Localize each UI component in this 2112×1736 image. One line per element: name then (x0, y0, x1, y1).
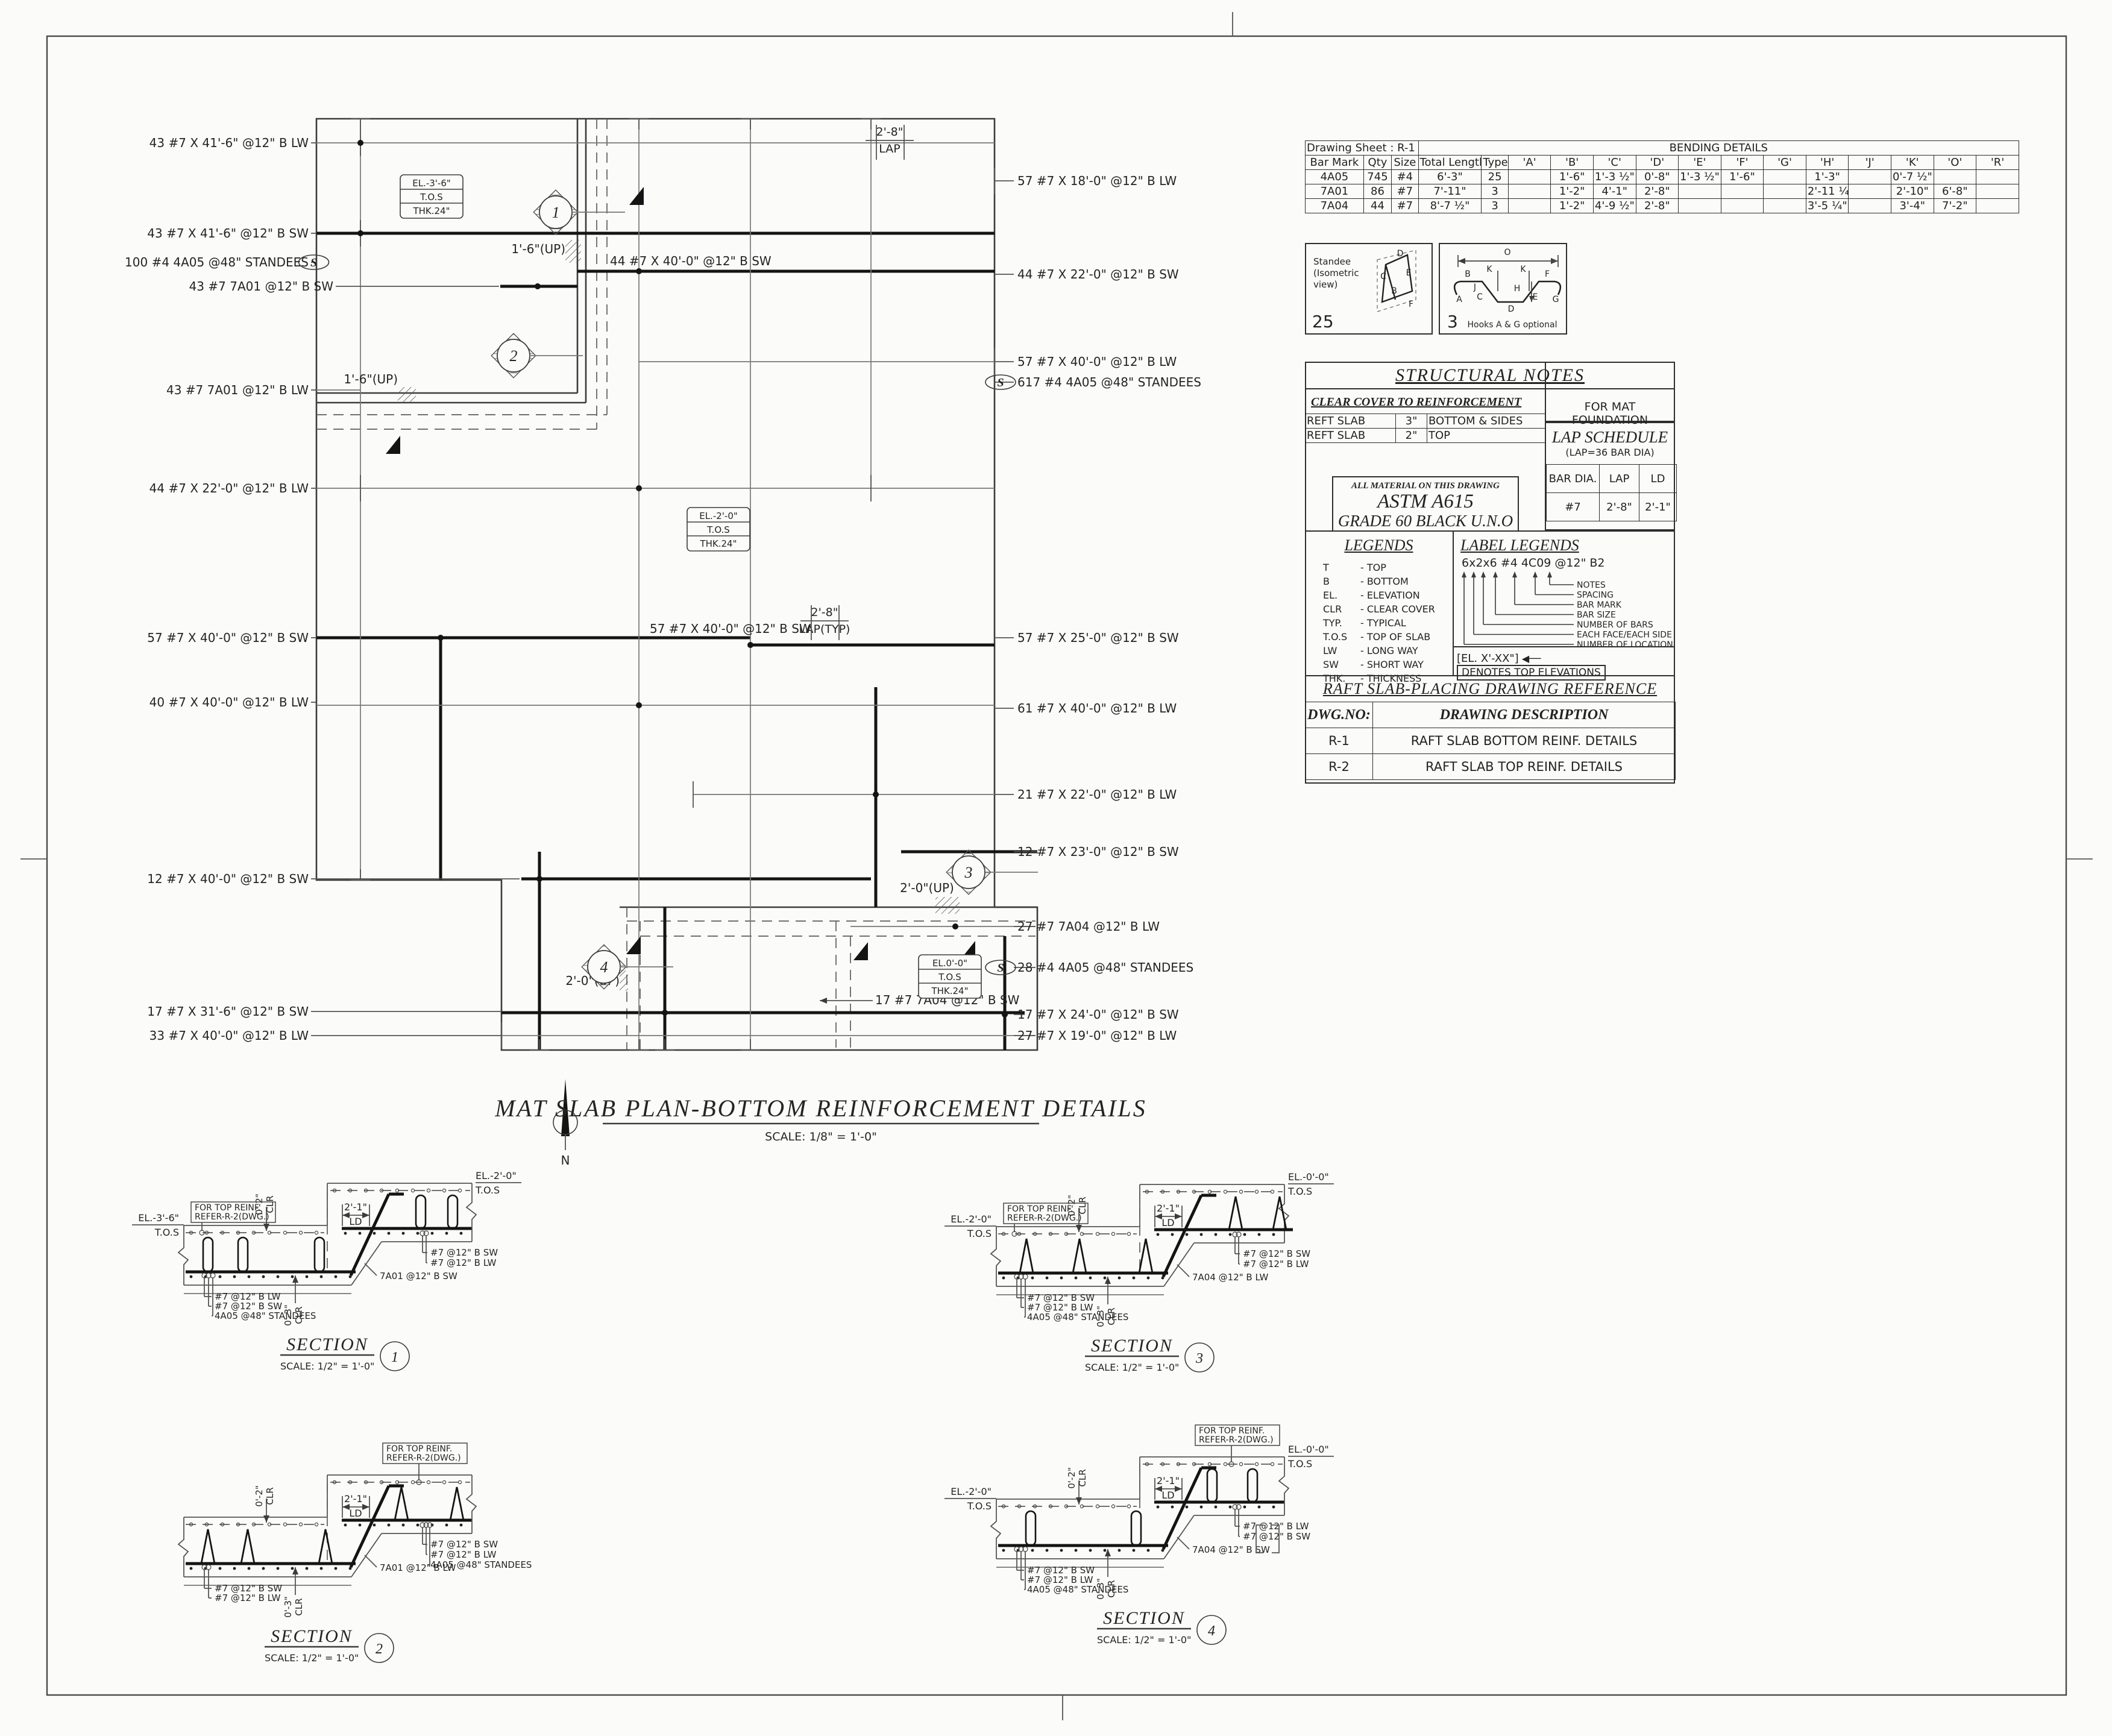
drawing-text: K (1486, 265, 1492, 274)
table-cell: REFT SLAB (1306, 414, 1396, 429)
table-cell (1764, 184, 1806, 199)
section-detail-1: 2'-1"LD0'-2"CLR0'-3"CLRFOR TOP REINF.REF… (132, 1170, 521, 1372)
drawing-text: SCALE: 1/2" = 1'-0" (265, 1652, 359, 1664)
drawing-text: E (1533, 292, 1538, 302)
table-header-cell: Size (1392, 156, 1418, 170)
drawing-text: EL.-2'-0" (476, 1170, 517, 1181)
table-cell (1508, 199, 1551, 213)
table-cell (1976, 199, 2019, 213)
elevation-sample: [EL. X'-XX"] (1457, 652, 1519, 665)
legend-item: LW- LONG WAY (1323, 644, 1435, 658)
drawing-text: 12 #7 X 40'-0" @12" B SW (147, 872, 309, 886)
bar-dot (535, 283, 541, 289)
drawing-text: LD (349, 1508, 362, 1519)
drawing-line (365, 1263, 377, 1275)
drawing-text: 57 #7 X 40'-0" @12" B LW (1017, 354, 1177, 369)
drawing-text: LD (1161, 1217, 1174, 1228)
drawing-text: FOR TOP REINF. (386, 1444, 452, 1454)
table-cell (1679, 184, 1721, 199)
table-cell: 1'-3 ½" (1679, 170, 1721, 184)
drawing-text: 25 (1312, 312, 1334, 332)
bar-dot (636, 485, 642, 491)
drawing-text: MAT SLAB PLAN-BOTTOM REINFORCEMENT DETAI… (494, 1095, 1147, 1122)
table-header-cell: 'O' (1934, 156, 1976, 170)
drawing-text: 2'-0"(UP) (900, 881, 954, 895)
drawing-text: (Isometric (1313, 268, 1359, 278)
drawing-text: D (1397, 249, 1404, 259)
drawing-text: 1'-6"(UP) (511, 242, 565, 256)
drawing-text: 4A05 @48" STANDEES (1027, 1584, 1128, 1595)
table-cell: #7 (1547, 493, 1600, 521)
lap-schedule-title: LAP SCHEDULE (1546, 428, 1674, 447)
table-header-cell: 'D' (1636, 156, 1679, 170)
drawing-text: T.O.S (475, 1184, 500, 1196)
legend-item: B- BOTTOM (1323, 574, 1435, 588)
section-detail-2: 2'-1"LD0'-2"CLR0'-3"CLRFOR TOP REINF.REF… (178, 1443, 532, 1664)
drawing-text: SECTION (1091, 1336, 1173, 1356)
table-cell: 1'-6" (1721, 170, 1764, 184)
drawing-text: 3 (964, 864, 973, 881)
drawing-text: 1 (391, 1350, 398, 1365)
table-cell: 1'-3 ½" (1593, 170, 1636, 184)
drawing-text: BAR MARK (1577, 600, 1622, 610)
drawing-text: F (1409, 300, 1413, 309)
table-header-cell: 'C' (1593, 156, 1636, 170)
structural-drawing-sheet: 43 #7 X 41'-6" @12" B LW43 #7 X 41'-6" @… (0, 0, 2112, 1736)
legends-title: LEGENDS (1305, 536, 1453, 555)
drawing-text: #7 @12" B SW (1243, 1248, 1310, 1259)
table-cell: 7'-11" (1418, 184, 1482, 199)
table-cell: 2'-8" (1636, 199, 1679, 213)
drawing-text: 1'-6"(UP) (344, 372, 398, 386)
drawing-text: A (1456, 295, 1462, 304)
legend-item: T- TOP (1323, 561, 1435, 574)
material-note-box: ALL MATERIAL ON THIS DRAWING ASTM A615 G… (1332, 476, 1519, 532)
table-cell (1508, 184, 1551, 199)
table-cell (1721, 184, 1764, 199)
bar-dot (438, 635, 444, 641)
drawing-text: #7 @12" B LW (215, 1593, 281, 1603)
drawing-text: J (1473, 283, 1476, 292)
drawing-text: THK.24" (699, 538, 737, 549)
drawing-text: 0'-2" (1066, 1467, 1077, 1489)
table-cell (1849, 199, 1891, 213)
drawing-text: REFER-R-2(DWG.) (1199, 1435, 1274, 1445)
drawing-text: 40 #7 X 40'-0" @12" B LW (149, 695, 309, 709)
drawing-text: 3 (1195, 1351, 1203, 1366)
drawing-text: 3 (1447, 312, 1458, 332)
drawing-text: 2'-1" (1157, 1203, 1180, 1214)
reference-title: RAFT SLAB-PLACING DRAWING REFERENCE (1305, 680, 1675, 698)
drawing-text: C (1380, 272, 1386, 281)
lap-schedule-subtitle: (LAP=36 BAR DIA) (1546, 447, 1674, 458)
drawing-text: B (1391, 286, 1397, 296)
table-header-cell: DWG.NO: (1306, 702, 1373, 728)
drawing-text: EL.-2'-0" (699, 511, 738, 521)
drawing-text: EL.0'-0" (932, 958, 967, 969)
drawing-text: 2'-1" (344, 1201, 367, 1213)
drawing-text: 7A01 @12" B LW (380, 1562, 456, 1573)
section-cut-flag (629, 187, 644, 205)
table-cell: 2" (1396, 429, 1427, 443)
bar-dot (357, 140, 363, 146)
table-cell (1764, 199, 1806, 213)
drawing-text: G (1553, 295, 1559, 304)
drawing-text: CLR (1077, 1469, 1088, 1486)
drawing-text: REFER-R-2(DWG.) (1007, 1213, 1082, 1223)
drawing-text: F (1545, 269, 1550, 279)
drawing-text: 44 #7 X 22'-0" @12" B LW (149, 481, 309, 495)
drawing-text: 44 #7 X 22'-0" @12" B SW (1017, 267, 1179, 281)
material-line-3: GRADE 60 BLACK U.N.O (1333, 512, 1518, 530)
drawing-text: SCALE: 1/2" = 1'-0" (1097, 1634, 1191, 1646)
drawing-text: LD (1161, 1489, 1174, 1501)
drawing-text: T.O.S (1287, 1186, 1312, 1197)
table-cell: 6'-8" (1934, 184, 1976, 199)
bend-type-25-box: Standee(Isometricview)25DCEBF (1305, 243, 1433, 335)
table-cell: 0'-8" (1636, 170, 1679, 184)
drawing-text: BAR SIZE (1577, 611, 1616, 620)
drawing-text: T.O.S (420, 192, 443, 203)
drawing-line (1177, 1265, 1189, 1277)
drawing-text: S (310, 256, 317, 269)
drawing-line (1177, 1537, 1189, 1549)
drawing-text: 43 #7 X 41'-6" @12" B LW (149, 136, 309, 150)
drawing-text: CLR (265, 1195, 275, 1213)
drawing-text: S (997, 376, 1004, 389)
table-cell: 2'-8" (1636, 184, 1679, 199)
standee-isometric-diagram: Standee(Isometricview)25DCEBF (1306, 244, 1432, 333)
drawing-text: 21 #7 X 22'-0" @12" B LW (1017, 787, 1177, 802)
table-header-cell: 'F' (1721, 156, 1764, 170)
drawing-text: 2'-8" (876, 125, 904, 139)
table-cell: 4'-9 ½" (1593, 199, 1636, 213)
drawing-text: T.O.S (706, 524, 730, 535)
section-cut-flag (853, 942, 868, 960)
drawing-text: NUMBER OF BARS (1577, 620, 1653, 630)
bar-dot (1002, 1011, 1008, 1017)
table-header-cell: 'B' (1551, 156, 1594, 170)
drawing-text: 57 #7 X 18'-0" @12" B LW (1017, 174, 1177, 188)
drawing-text: T.O.S (1287, 1458, 1312, 1470)
drawing-text: C (1477, 292, 1483, 302)
bar-dot (747, 642, 753, 648)
section-details: 2'-1"LD0'-2"CLR0'-3"CLRFOR TOP REINF.REF… (132, 1170, 1334, 1664)
table-cell: #4 (1392, 170, 1418, 184)
bar-dot (357, 230, 363, 236)
drawing-text: K (1520, 265, 1526, 274)
drawing-text: S (997, 961, 1004, 975)
table-cell (1721, 199, 1764, 213)
table-cell: 3" (1396, 414, 1427, 429)
drawing-text: 2 (510, 347, 518, 365)
bar-dot (536, 876, 542, 882)
drawing-text: T.O.S (154, 1227, 179, 1238)
table-cell: 2'-10" (1891, 184, 1934, 199)
drawing-text: 4 (1208, 1623, 1215, 1639)
table-cell: 4A05 (1306, 170, 1364, 184)
legend-item: EL.- ELEVATION (1323, 588, 1435, 602)
table-header-cell: LD (1639, 465, 1677, 493)
table-cell: 3 (1482, 184, 1508, 199)
label-legends-diagram: 6x2x6 #4 4C09 @12" B2NOTESSPACINGBAR MAR… (1456, 556, 1673, 646)
table-header-cell: 'G' (1764, 156, 1806, 170)
bending-details-table: Drawing Sheet : R-1BENDING DETAILSBar Ma… (1305, 140, 2019, 213)
drawing-text: 4 (600, 958, 608, 976)
table-header-cell: LAP (1600, 465, 1639, 493)
table-header-cell: 'J' (1849, 156, 1891, 170)
drawing-text: 43 #7 7A01 @12" B SW (189, 279, 334, 294)
drawing-text: T.O.S (967, 1228, 992, 1239)
drawing-text: SCALE: 1/2" = 1'-0" (1085, 1362, 1179, 1373)
drawing-text: D (1508, 304, 1515, 314)
drawing-text: SCALE: 1/2" = 1'-0" (280, 1360, 374, 1372)
drawing-text: EL.-2'-0" (951, 1213, 992, 1225)
section-cut-flag (386, 436, 400, 454)
drawing-text: #7 @12" B LW (1243, 1259, 1309, 1269)
clear-cover-title: CLEAR COVER TO REINFORCEMENT (1311, 395, 1521, 409)
drawing-text: E (1406, 268, 1412, 278)
table-header-cell: BAR DIA. (1547, 465, 1600, 493)
drawing-text: view) (1313, 279, 1337, 290)
table-cell (1764, 170, 1806, 184)
table-cell: 86 (1363, 184, 1391, 199)
legend-item: T.O.S- TOP OF SLAB (1323, 630, 1435, 644)
section-cut-flag (626, 936, 641, 954)
section-detail-4: 2'-1"LD0'-2"CLR0'-3"CLRFOR TOP REINF.REF… (944, 1425, 1334, 1646)
table-cell: 7A01 (1306, 184, 1364, 199)
table-cell (1976, 170, 2019, 184)
table-cell: 2'-8" (1600, 493, 1639, 521)
drawing-text: 43 #7 7A01 @12" B LW (166, 383, 309, 397)
drawing-text: 28 #4 4A05 @48" STANDEES (1017, 960, 1193, 975)
table-cell (1679, 199, 1721, 213)
table-cell: 6'-3" (1418, 170, 1482, 184)
table-cell: R-2 (1306, 754, 1373, 780)
table-header-cell: Bar Mark (1306, 156, 1364, 170)
drawing-text: 27 #7 X 19'-0" @12" B LW (1017, 1028, 1177, 1043)
drawing-text: T.O.S (967, 1500, 992, 1512)
table-header-cell: 'H' (1806, 156, 1849, 170)
material-line-1: ALL MATERIAL ON THIS DRAWING (1333, 481, 1518, 491)
legends-list: T- TOPB- BOTTOMEL.- ELEVATIONCLR- CLEAR … (1323, 561, 1435, 685)
table-cell: 3'-4" (1891, 199, 1934, 213)
material-line-2: ASTM A615 (1333, 491, 1518, 512)
table-header-cell: Type (1482, 156, 1508, 170)
drawing-text: CLR (294, 1598, 304, 1615)
drawing-text: EL.-3'-6" (138, 1212, 179, 1224)
drawing-line (365, 1555, 377, 1567)
drawing-text: #7 @12" B SW (430, 1539, 498, 1550)
drawing-text: 617 #4 4A05 @48" STANDEES (1017, 375, 1201, 389)
drawing-text: 57 #7 X 25'-0" @12" B SW (1017, 631, 1179, 645)
legend-item: TYP.- TYPICAL (1323, 616, 1435, 630)
table-cell: BOTTOM & SIDES (1427, 414, 1545, 429)
bar-dot (636, 268, 642, 274)
drawing-text: SECTION (1103, 1608, 1185, 1628)
legend-item: CLR- CLEAR COVER (1323, 602, 1435, 616)
arrow-left-icon: ◀── (1522, 653, 1541, 664)
drawing-text: REFER-R-2(DWG.) (386, 1453, 461, 1463)
drawing-text: 44 #7 X 40'-0" @12" B SW (610, 254, 772, 268)
table-cell (1976, 184, 2019, 199)
table-cell (1508, 170, 1551, 184)
drawing-text: 2 (376, 1641, 383, 1657)
table-cell (1934, 170, 1976, 184)
drawing-text: B (1465, 269, 1471, 279)
drawing-text: 0'-3" (283, 1596, 294, 1618)
drawing-text: 57 #7 X 40'-0" @12" B SW (650, 621, 811, 636)
table-header-cell: 'R' (1976, 156, 2019, 170)
table-header-cell: Total Length (1418, 156, 1482, 170)
drawing-text: 2'-8" (811, 606, 838, 619)
table-cell: 3'-5 ¼" (1806, 199, 1849, 213)
drawing-text: EL.-0'-0" (1288, 1171, 1329, 1183)
drawing-text: THK.24" (931, 986, 968, 996)
drawing-text: 2'-1" (344, 1493, 367, 1505)
drawing-text: SECTION (271, 1626, 353, 1646)
drawing-text: THK.24" (412, 206, 450, 216)
drawing-canvas: 43 #7 X 41'-6" @12" B LW43 #7 X 41'-6" @… (0, 0, 2112, 1736)
table-cell: 8'-7 ½" (1418, 199, 1482, 213)
table-cell: 2'-11 ¼" (1806, 184, 1849, 199)
drawing-text: H (1514, 284, 1521, 294)
drawing-text: SCALE: 1/8" = 1'-0" (765, 1130, 877, 1143)
drawing-text: 0'-2" (254, 1485, 265, 1507)
drawing-text: #7 @12" B SW (1243, 1531, 1310, 1542)
legend-item: SW- SHORT WAY (1323, 658, 1435, 671)
drawing-text: 1 (552, 204, 560, 221)
drawing-text: #7 @12" B LW (430, 1257, 497, 1268)
drawing-text: FOR TOP REINF. (195, 1203, 260, 1213)
elevation-note: [EL. X'-XX"] ◀── DENOTES TOP ELEVATIONS (1457, 652, 1674, 674)
drawing-text: N (561, 1153, 570, 1168)
bar-dot (952, 923, 958, 929)
drawing-text: 17 #7 X 31'-6" @12" B SW (147, 1004, 309, 1019)
drawing-text: EL.-2'-0" (951, 1486, 992, 1497)
drawing-text: CLR (1077, 1197, 1088, 1214)
drawing-text: 61 #7 X 40'-0" @12" B LW (1017, 701, 1177, 715)
table-cell: REFT SLAB (1306, 429, 1396, 443)
table-cell: 7'-2" (1934, 199, 1976, 213)
bar-dot (873, 791, 879, 797)
drawing-text: LD (349, 1216, 362, 1227)
drawing-text: 27 #7 7A04 @12" B LW (1017, 919, 1160, 934)
table-cell: TOP (1427, 429, 1545, 443)
bend-type-3-box: OKKBFJHACEGD3Hooks A & G optional (1439, 243, 1567, 335)
table-header-cell: Drawing Sheet : R-1 (1306, 141, 1419, 156)
drawing-text: #7 @12" B LW (430, 1549, 497, 1560)
drawing-text: EL.-3'-6" (412, 178, 451, 189)
table-cell: 4'-1" (1593, 184, 1636, 199)
drawing-text: 100 #4 4A05 @48" STANDEES (125, 255, 309, 269)
table-cell (1849, 170, 1891, 184)
drawing-text: O (1504, 248, 1510, 257)
north-arrow: N (553, 1079, 577, 1168)
drawing-text: T.O.S (938, 972, 961, 983)
drawing-text: SPACING (1577, 591, 1614, 600)
hook-profile-diagram: OKKBFJHACEGD3Hooks A & G optional (1440, 244, 1566, 333)
drawing-text: 6x2x6 #4 4C09 @12" B2 (1462, 556, 1605, 570)
table-cell: 7A04 (1306, 199, 1364, 213)
drawing-text: 12 #7 X 23'-0" @12" B SW (1017, 844, 1179, 859)
table-cell: 2'-1" (1639, 493, 1677, 521)
lap-schedule-table: BAR DIA.LAPLD#72'-8"2'-1" (1546, 464, 1677, 521)
clear-cover-table: REFT SLAB3"BOTTOM & SIDESREFT SLAB2"TOP (1305, 414, 1545, 443)
drawing-text: 4A05 @48" STANDEES (1027, 1312, 1128, 1322)
bar-dot (636, 702, 642, 708)
table-cell: RAFT SLAB BOTTOM REINF. DETAILS (1373, 728, 1676, 754)
table-cell: 44 (1363, 199, 1391, 213)
drawing-text: FOR TOP REINF. (1199, 1426, 1265, 1436)
drawing-text: 2'-1" (1157, 1475, 1180, 1486)
table-cell: 745 (1363, 170, 1391, 184)
drawing-text: EACH FACE/EACH SIDE (1577, 631, 1672, 640)
label-legends-title: LABEL LEGENDS (1460, 536, 1579, 555)
table-cell: 1'-2" (1551, 199, 1594, 213)
table-cell: RAFT SLAB TOP REINF. DETAILS (1373, 754, 1676, 780)
drawing-text: EL.-0'-0" (1288, 1444, 1329, 1455)
drawing-text: 7A04 @12" B SW (1192, 1544, 1270, 1555)
drawing-text: 17 #7 X 24'-0" @12" B SW (1017, 1007, 1179, 1022)
drawing-text: 7A04 @12" B LW (1192, 1272, 1268, 1283)
section-detail-3: 2'-1"LD0'-2"CLR0'-3"CLRFOR TOP REINF.REF… (944, 1171, 1334, 1373)
drawing-text: 43 #7 X 41'-6" @12" B SW (147, 226, 309, 241)
drawing-text: Hooks A & G optional (1468, 320, 1557, 330)
drawing-text: 33 #7 X 40'-0" @12" B LW (149, 1028, 309, 1043)
drawing-text: Standee (1313, 256, 1351, 267)
table-header-cell: Qty (1363, 156, 1391, 170)
bar-dot (662, 1010, 668, 1016)
drawing-text: 57 #7 X 40'-0" @12" B SW (147, 631, 309, 645)
drawing-text: CLR (265, 1487, 275, 1505)
drawing-text: REFER-R-2(DWG.) (195, 1212, 269, 1222)
drawing-text: #7 @12" B LW (1243, 1521, 1309, 1532)
drawing-text: SECTION (286, 1335, 368, 1354)
table-cell: 1'-6" (1551, 170, 1594, 184)
table-cell: #7 (1392, 184, 1418, 199)
table-cell: 25 (1482, 170, 1508, 184)
drawing-text: NOTES (1577, 580, 1606, 590)
elevation-note-text: DENOTES TOP ELEVATIONS (1457, 665, 1606, 681)
drawing-text: 4A05 @48" STANDEES (215, 1310, 316, 1321)
table-cell: 0'-7 ½" (1891, 170, 1934, 184)
table-header-cell: BENDING DETAILS (1418, 141, 2019, 156)
drawing-text: LAP (879, 142, 900, 156)
table-cell: 1'-3" (1806, 170, 1849, 184)
drawing-text: 7A01 @12" B SW (380, 1271, 457, 1282)
table-header-cell: 'K' (1891, 156, 1934, 170)
table-cell: R-1 (1306, 728, 1373, 754)
mat-slab-plan: 43 #7 X 41'-6" @12" B LW43 #7 X 41'-6" @… (125, 119, 1201, 1168)
drawing-text: NUMBER OF LOCATION (1577, 640, 1673, 646)
table-header-cell: 'A' (1508, 156, 1551, 170)
table-cell (1849, 184, 1891, 199)
drawing-text: LAP(TYP) (799, 623, 850, 636)
table-cell: 1'-2" (1551, 184, 1594, 199)
table-cell: #7 (1392, 199, 1418, 213)
structural-notes-block: STRUCTURAL NOTES CLEAR COVER TO REINFORC… (1305, 362, 1675, 784)
table-header-cell: DRAWING DESCRIPTION (1373, 702, 1676, 728)
table-header-cell: 'E' (1679, 156, 1721, 170)
reference-table: DWG.NO:DRAWING DESCRIPTIONR-1RAFT SLAB B… (1305, 702, 1676, 780)
drawing-text: FOR TOP REINF. (1007, 1204, 1073, 1214)
table-cell: 3 (1482, 199, 1508, 213)
drawing-text: #7 @12" B SW (430, 1247, 498, 1258)
